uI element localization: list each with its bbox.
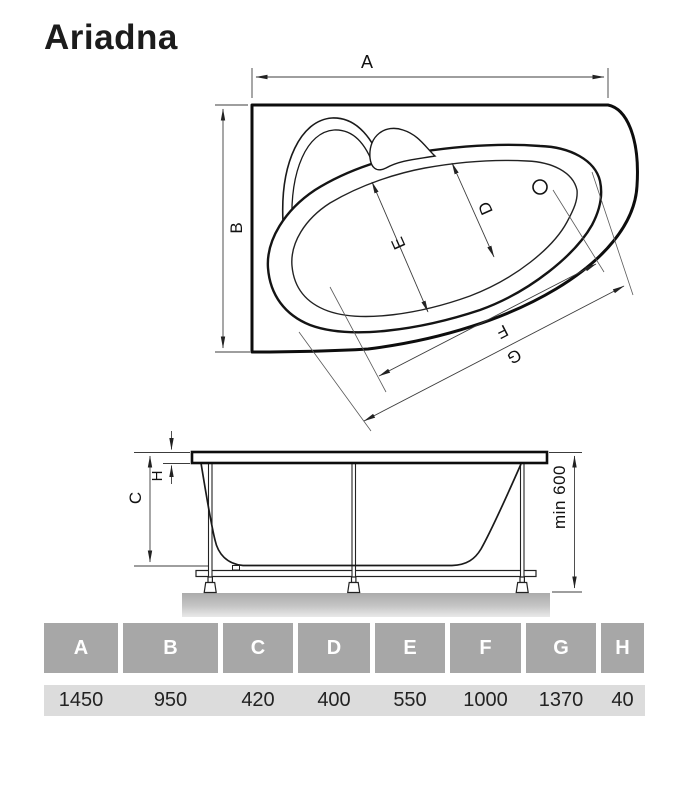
dimensions-table: A B C D E F G H 1450 950 420 400 550 100… xyxy=(44,623,645,716)
top-view-drawing: A B E D F xyxy=(215,52,637,431)
adjustable-feet xyxy=(204,577,528,593)
table-header-cell-b: B xyxy=(123,623,218,673)
page: Ariadna xyxy=(0,0,690,800)
table-value-e: 550 xyxy=(375,685,445,716)
table-header-cell-a: A xyxy=(44,623,118,673)
rim-bar xyxy=(192,452,547,463)
label-dim-h: H xyxy=(149,471,166,482)
table-value-d: 400 xyxy=(298,685,370,716)
table-value-c: 420 xyxy=(223,685,293,716)
frame-bar xyxy=(196,571,536,577)
dimension-c xyxy=(134,453,208,567)
label-dim-b: B xyxy=(227,222,246,233)
label-dim-a: A xyxy=(361,52,373,72)
label-dim-c: C xyxy=(126,492,145,504)
table-value-a: 1450 xyxy=(44,685,118,716)
label-dim-f: F xyxy=(493,321,511,343)
label-min-height: min 600 xyxy=(550,465,569,529)
table-header-cell-e: E xyxy=(375,623,445,673)
drain-hole-icon xyxy=(533,180,547,194)
ground xyxy=(182,593,550,617)
table-header-cell-f: F xyxy=(450,623,521,673)
table-header-row: A B C D E F G H xyxy=(44,623,645,673)
table-value-g: 1370 xyxy=(526,685,596,716)
table-value-h: 40 xyxy=(601,685,644,716)
table-header-cell-d: D xyxy=(298,623,370,673)
label-dim-g: G xyxy=(504,345,524,368)
dimension-a xyxy=(252,68,608,98)
table-value-f: 1000 xyxy=(450,685,521,716)
table-header-cell-g: G xyxy=(526,623,596,673)
drain-outlet xyxy=(233,566,240,571)
dimension-h xyxy=(163,431,190,484)
side-view-drawing: C H min 600 xyxy=(126,431,582,617)
table-header-cell-h: H xyxy=(601,623,644,673)
technical-drawing: A B E D F xyxy=(0,0,690,620)
tub-profile xyxy=(201,463,521,566)
table-header-cell-c: C xyxy=(223,623,293,673)
table-value-row: 1450 950 420 400 550 1000 1370 40 xyxy=(44,685,645,716)
frame-legs xyxy=(209,463,525,577)
table-value-b: 950 xyxy=(123,685,218,716)
